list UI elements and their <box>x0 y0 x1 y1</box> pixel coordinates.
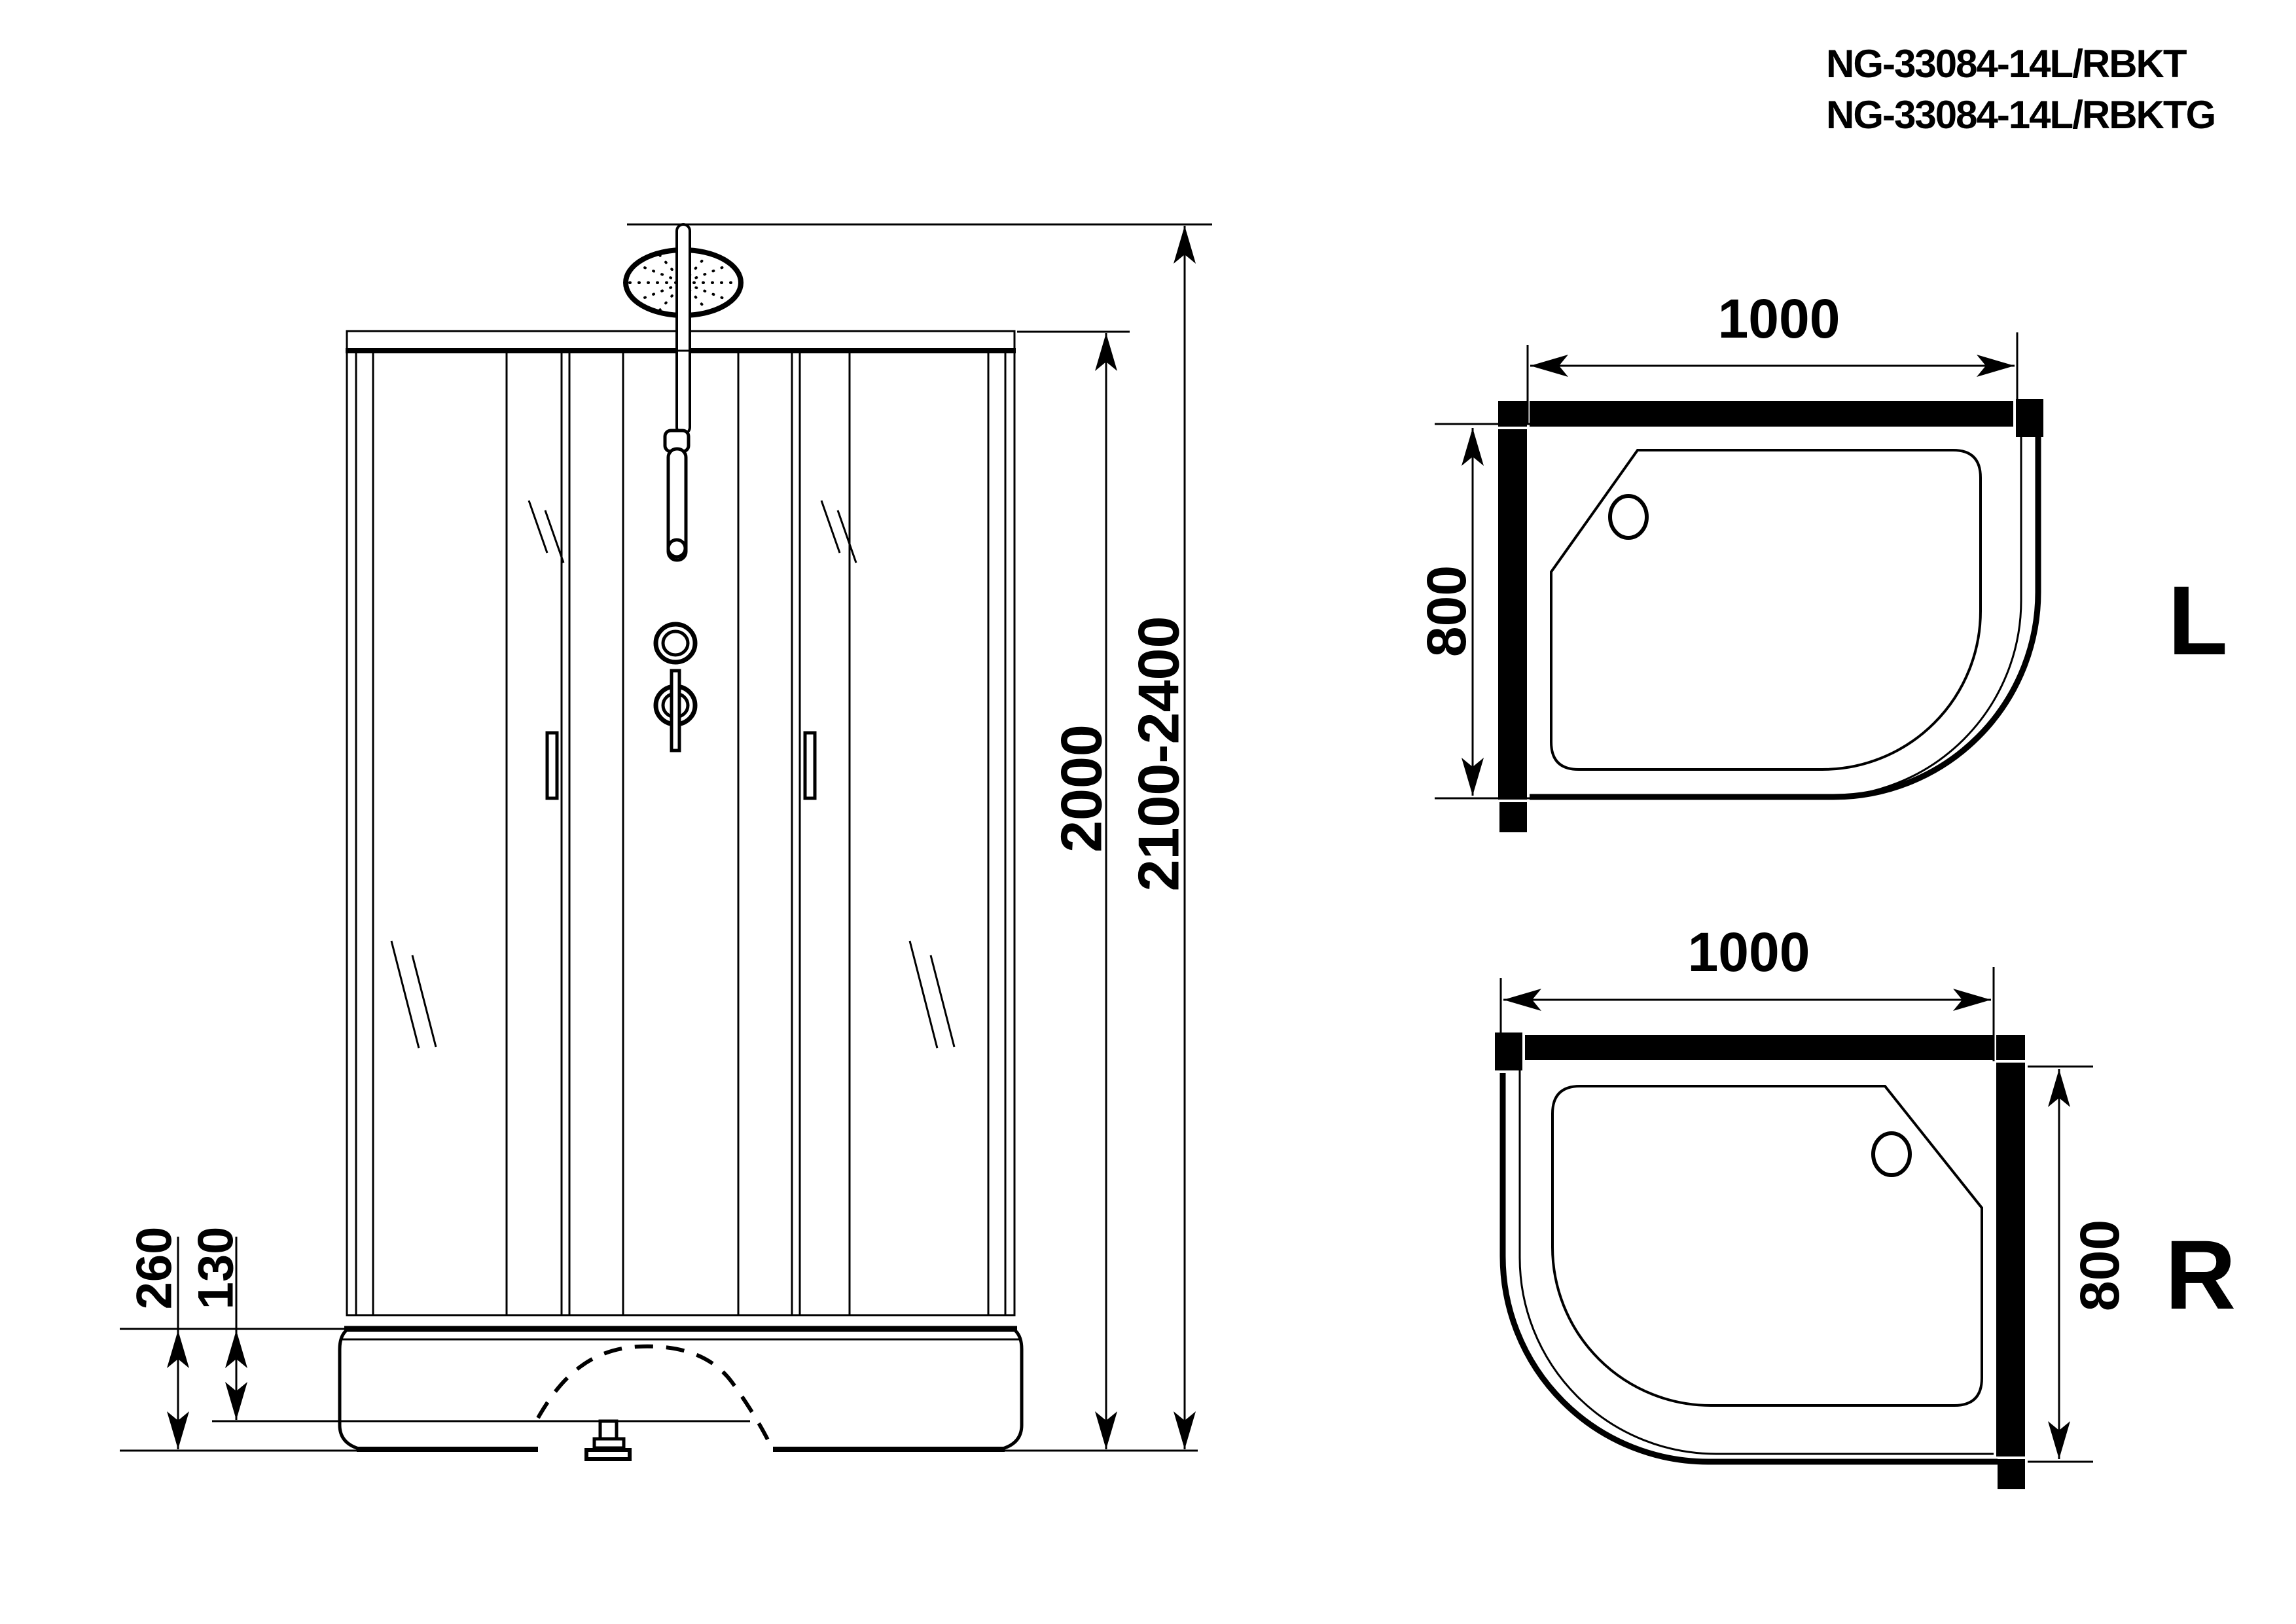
dimension-label-1000: 1000 <box>1718 288 1840 349</box>
side-wall-bar <box>1498 429 1527 800</box>
dimension-label-260: 260 <box>127 1227 183 1310</box>
tray-right-profile <box>1003 1329 1022 1449</box>
dimension-tray-step: 130 <box>188 1227 248 1420</box>
foot-stem <box>600 1421 617 1439</box>
shower-tray <box>212 1329 1022 1459</box>
glass-shine-marks <box>391 501 954 1048</box>
dimension-plan-depth: 800 <box>2028 1067 2130 1462</box>
shine-mark <box>838 510 856 563</box>
door-handle-left <box>547 733 557 798</box>
shower-cabin-technical-drawing: 260 130 2000 2100-2400 <box>0 0 2296 1624</box>
drain-circle <box>1873 1133 1910 1175</box>
tray-bowl-outline <box>1552 1086 1982 1405</box>
adjustable-foot <box>586 1421 630 1459</box>
mixer-controls <box>656 624 695 750</box>
drawing-sheet: 260 130 2000 2100-2400 <box>0 0 2296 1624</box>
shine-mark <box>529 501 547 553</box>
shine-mark <box>821 501 840 553</box>
side-wall-bar <box>1996 1063 2025 1456</box>
glass-end-post <box>1998 1459 2025 1489</box>
dimension-label-1000: 1000 <box>1688 921 1810 983</box>
foot-upper-plate <box>594 1439 624 1448</box>
dimension-tray-height: 260 <box>127 1227 190 1449</box>
shine-mark <box>391 941 419 1048</box>
glass-corner-post <box>1495 1033 1522 1070</box>
curved-glass-front <box>1503 1073 1998 1462</box>
glass-corner-post <box>2016 399 2043 437</box>
mixer-knob-upper-inner <box>663 631 688 655</box>
drain-circle <box>1610 496 1647 538</box>
dimension-inner-height: 2000 <box>1049 333 1118 1449</box>
variant-letter-R: R <box>2165 1220 2236 1330</box>
front-elevation-view: 260 130 2000 2100-2400 <box>120 224 1212 1459</box>
tray-rim-outline <box>1520 1063 1994 1454</box>
cutaway-dashed-line <box>538 1347 772 1448</box>
plan-view-left-version: 1000 800 L <box>1416 288 2228 832</box>
model-number-line2: NG-33084-14L/RBKTG <box>1826 93 2215 137</box>
foot-base-plate <box>586 1450 630 1459</box>
dimension-label-800: 800 <box>1416 565 1477 657</box>
door-handle-right <box>805 733 815 798</box>
shower-riser-pole <box>677 224 690 434</box>
dimension-label-2000: 2000 <box>1049 724 1114 853</box>
shine-mark <box>910 941 937 1048</box>
dimension-label-2100-2400: 2100-2400 <box>1126 616 1191 892</box>
model-number-line1: NG-33084-14L/RBKT <box>1826 42 2187 86</box>
back-wall-bar <box>1530 401 2013 427</box>
dimension-label-130: 130 <box>188 1227 244 1310</box>
glass-end-post <box>1499 802 1527 832</box>
wall-corner-block <box>1996 1035 2025 1060</box>
dimension-label-800: 800 <box>2069 1220 2130 1311</box>
plan-view-right-version: 1000 800 R <box>1495 921 2236 1489</box>
mixer-lever <box>672 671 679 750</box>
model-title-block: NG-33084-14L/RBKT NG-33084-14L/RBKTG <box>1826 42 2215 137</box>
variant-letter-L: L <box>2168 565 2228 675</box>
curved-glass-front <box>1530 437 2038 797</box>
tray-left-profile <box>340 1329 359 1449</box>
tray-rim-outline <box>1530 427 2021 797</box>
wall-corner-block <box>1498 401 1527 427</box>
dimension-overall-height: 2100-2400 <box>1126 226 1196 1449</box>
tray-bowl-outline <box>1551 450 1981 769</box>
back-wall-bar <box>1525 1035 1994 1060</box>
